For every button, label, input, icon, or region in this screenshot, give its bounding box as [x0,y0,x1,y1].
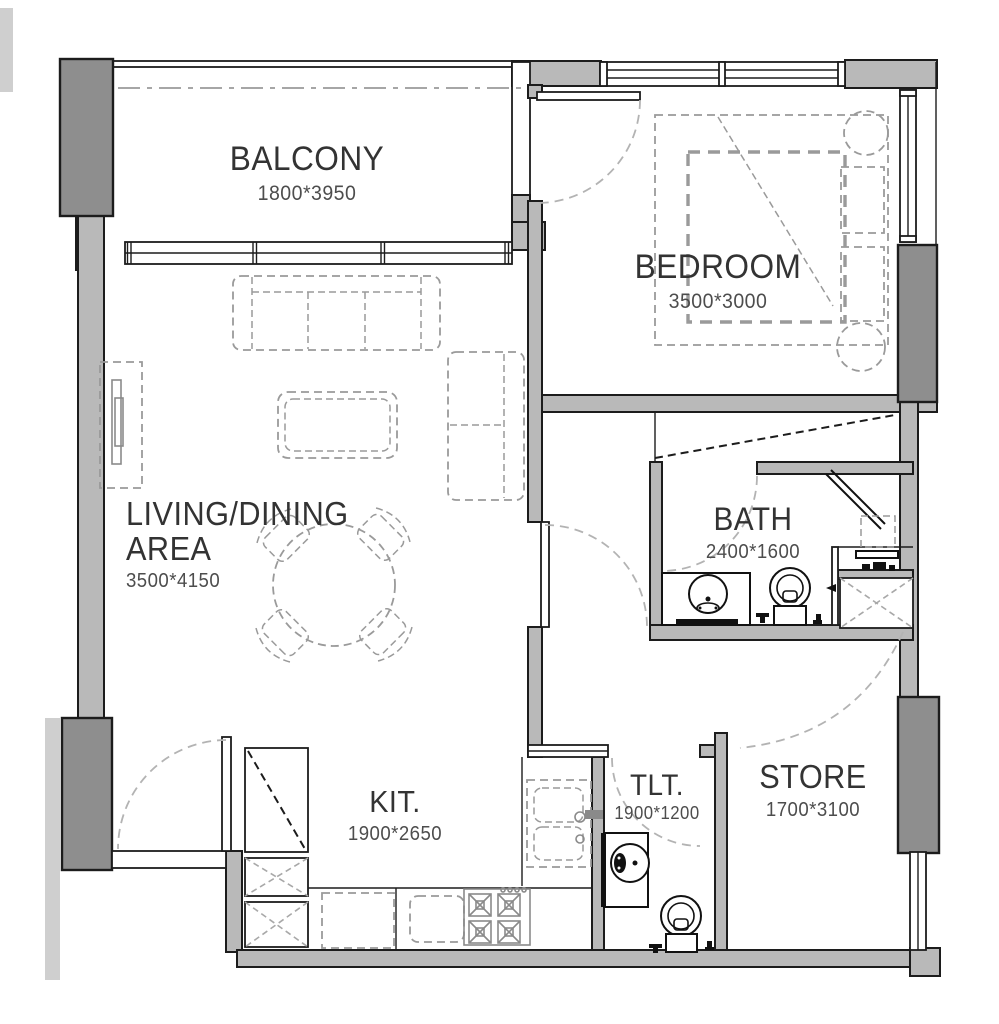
room-dims-living: 3500*4150 [126,569,349,593]
room-name-living-line1: LIVING/DINING [126,497,349,532]
room-label-store: STORE 1700*3100 [759,760,867,822]
room-label-balcony: BALCONY 1800*3950 [230,142,384,206]
room-name-balcony: BALCONY [230,142,384,178]
room-name-bedroom: BEDROOM [635,250,802,286]
room-dims-bath: 2400*1600 [706,540,800,564]
room-label-living-dining: LIVING/DINING AREA 3500*4150 [126,497,349,593]
room-dims-store: 1700*3100 [759,798,867,822]
bedroom-furniture [655,111,888,371]
room-name-kitchen: KIT. [348,786,442,819]
wardrobe [655,415,895,458]
room-label-bedroom: BEDROOM 3500*3000 [635,250,802,314]
room-dims-toilet: 1900*1200 [614,803,699,825]
room-label-bath: BATH 2400*1600 [706,503,800,564]
toilet-fixtures [601,833,714,953]
room-dims-bedroom: 3500*3000 [635,289,802,314]
room-name-bath: BATH [706,503,800,537]
living-furniture [100,276,524,667]
room-name-toilet: TLT. [614,770,699,802]
exterior-paving [0,8,60,980]
room-name-store: STORE [759,760,867,795]
room-dims-balcony: 1800*3950 [230,181,384,206]
room-label-toilet: TLT. 1900*1200 [614,770,699,824]
room-label-kitchen: KIT. 1900*2650 [348,786,442,846]
floor-plan: BALCONY 1800*3950 BEDROOM 3500*3000 LIVI… [0,0,999,1024]
room-dims-kitchen: 1900*2650 [348,822,442,846]
room-name-living-line2: AREA [126,532,349,567]
